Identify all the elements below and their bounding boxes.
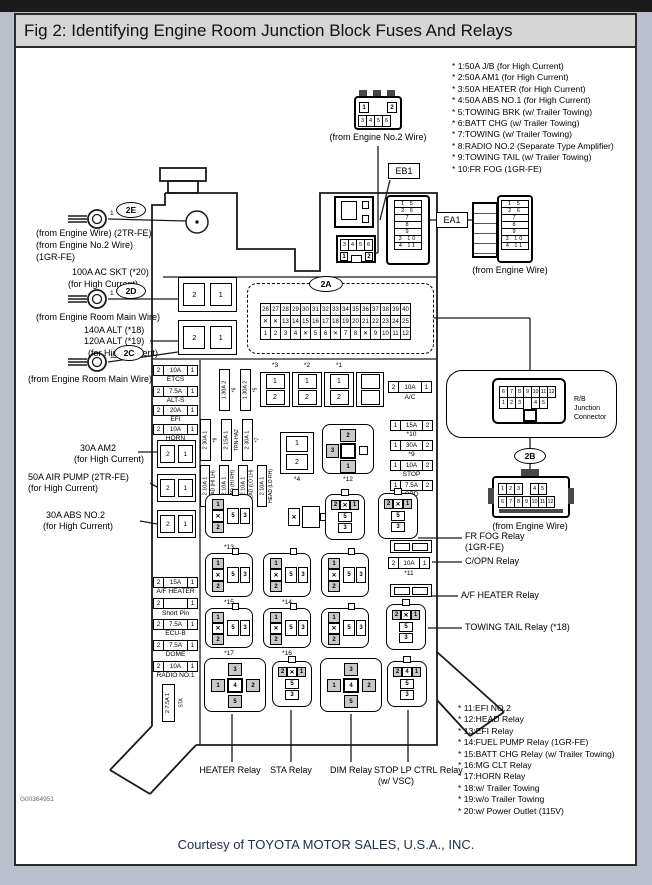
label-engine-wire-2: (from Engine No.2 Wire)	[36, 241, 133, 251]
fuse-name-text: HEAD (LO RH)	[268, 469, 274, 503]
relay-pin: 2	[392, 610, 401, 620]
legend-entry: * 11:EFI NO.2	[458, 703, 615, 714]
block-cell: 1	[266, 374, 285, 389]
relay-pin: 5	[227, 508, 239, 524]
connector-pin: 2	[365, 252, 373, 261]
fuse-p2: 1	[187, 366, 197, 375]
fuse-cell: 2	[160, 479, 175, 497]
relay-pin: 3	[356, 567, 366, 583]
relay-sta: 2 ✕ 1 5 3	[272, 661, 312, 707]
connector-keyway	[523, 409, 537, 422]
relay-pin: 5	[228, 695, 242, 708]
legend-entry: * 12:HEAD Relay	[458, 714, 615, 725]
fuse-name-text: TRN-HAZ	[234, 429, 240, 451]
relay-pin: 1	[403, 499, 412, 509]
relay-star12: 2 3 1	[322, 424, 374, 474]
relay-pin: 2	[270, 581, 282, 592]
callout-af-heater: A/F HEATER Relay	[461, 591, 539, 601]
fuse-cell: 1	[178, 515, 193, 533]
fuse-name: *9	[390, 451, 433, 458]
fuse-amp: 10A	[164, 662, 187, 671]
relay-pin: 1	[297, 667, 306, 677]
relay-pin: 2	[328, 634, 340, 645]
fuse-dome: 27.5A1	[153, 640, 198, 651]
legend-entry: * 13:EFI Relay	[458, 726, 615, 737]
fuse-p1: 1	[391, 421, 401, 430]
fuse-amp: 10A	[164, 366, 187, 375]
connector-pin-row: 12345	[499, 483, 547, 495]
fuse-block-star3: 1 2	[260, 372, 290, 407]
fuse-rating: 2 10A 1	[202, 477, 208, 496]
relay-pin: 3	[240, 620, 250, 636]
fuse-trn-haz: 2 15A 1	[221, 419, 232, 461]
relay-pin: 2	[340, 429, 356, 442]
document-id: G00364951	[20, 796, 54, 803]
fuse-p1: 2	[154, 425, 164, 434]
fuse-name: *8	[211, 419, 220, 461]
relay-pin: 3	[240, 508, 250, 524]
relay-pin: 3	[326, 444, 339, 458]
connector-pin: 12	[547, 386, 556, 398]
blank-fuse-box	[390, 584, 432, 597]
fuse-star7: 2 30A 1	[242, 419, 253, 461]
relay-small: ✕	[288, 506, 326, 530]
callout-sta-relay: STA Relay	[262, 766, 320, 776]
fuse-p1: 2	[154, 620, 164, 629]
relay-star15: 1 ✕ 2 5 3	[205, 553, 253, 597]
label-engine-wire-1: (from Engine Wire) (2TR-FE)	[36, 229, 152, 239]
fuse-amp	[164, 599, 187, 608]
relay-pin: 4	[227, 678, 243, 693]
2b-engine-wire-connector: 12345 6789101112	[492, 476, 570, 518]
block-cell: 2	[266, 390, 285, 405]
fuse-rating: 1 30A 2	[243, 381, 249, 400]
ring-pin-number: 1	[110, 290, 114, 297]
relay-stub	[348, 548, 355, 555]
relay-pin: 2	[212, 634, 224, 645]
relay-pin: 3	[338, 523, 352, 533]
relay-label: *13	[205, 544, 253, 551]
fuse-name: A/F HEATER	[153, 588, 198, 595]
callout-dim-relay: DIM Relay	[320, 766, 382, 776]
connector-pin-row: 4 11	[501, 242, 529, 250]
fuse-star10: 115A2	[390, 420, 433, 431]
block-label: *4	[280, 476, 314, 483]
relay-pin: 1	[350, 500, 359, 510]
fuse-name: *6	[230, 369, 239, 411]
fuse-name: STOP	[390, 471, 433, 478]
relay-pin: 3	[240, 567, 250, 583]
relay-a: 1 ✕ 2 5 3	[321, 608, 369, 648]
relay-pin: 5	[338, 512, 352, 522]
fuse-name: DOME	[153, 651, 198, 658]
label-abs-2: (for High Current)	[43, 522, 113, 532]
fuse-name: ETCS	[153, 376, 198, 383]
block-cell	[361, 390, 380, 405]
relay-pin: 4	[343, 678, 359, 693]
relay-stub	[232, 548, 239, 555]
block-cell	[361, 374, 380, 389]
legend-entry: * 9:TOWING TAIL (w/ Trailer Towing)	[452, 152, 614, 163]
fuse-name: *10	[390, 431, 433, 438]
label-box-eb1: EB1	[388, 163, 420, 179]
fuse-p1: 2	[389, 382, 399, 392]
relay-pin: 1	[328, 612, 340, 623]
fuse-name: TRN-HAZ	[232, 419, 241, 461]
connector-oval-2b: 2B	[514, 448, 546, 464]
relay-pin: 3	[400, 690, 414, 700]
callout-fr-fog-1: FR FOG Relay	[465, 532, 525, 542]
fuse-p2: 1	[419, 558, 429, 568]
connector-keyway	[351, 255, 362, 263]
rb-junction-connector: 6789101112 12345	[492, 378, 566, 424]
relay-pin: 1	[411, 610, 420, 620]
fuse-p1: 2	[154, 366, 164, 375]
fuse-amp: 7.5A	[164, 641, 187, 650]
relay-dim: 3 1 4 2 5	[320, 658, 382, 712]
relay-pin: 1	[212, 558, 224, 569]
relay-pin: 3	[298, 620, 308, 636]
relay-pin: 5	[344, 695, 358, 708]
relay-pin: 3	[391, 522, 405, 532]
connector-ear	[488, 488, 494, 504]
fuse-name: RADIO NO.1	[153, 672, 198, 679]
relay-stub	[348, 603, 355, 610]
connector-pin-rows: 1 52 67893 104 11	[501, 201, 529, 250]
fuse-p1: 2	[154, 578, 164, 587]
relay-star13: 1 ✕ 2 5 3	[205, 494, 253, 538]
fuse-amp: 30A	[401, 441, 422, 450]
relay-stub	[232, 489, 239, 496]
fuse-p2: 1	[187, 599, 197, 608]
relay-pin: ✕	[270, 623, 282, 634]
relay-pin: ✕	[287, 667, 297, 677]
fuse-star5: 1 30A 2	[240, 369, 251, 411]
connector-pin-row: 3456	[359, 115, 391, 127]
relay-pin: 3	[399, 633, 413, 643]
legend-entry: * 18:w/ Trailer Towing	[458, 783, 615, 794]
fuse-amp: 7.5A	[164, 620, 187, 629]
fuse-name-text: *8	[212, 438, 218, 443]
fuse-name: *11	[388, 570, 430, 577]
fuse-alt-s: 27.5A1	[153, 386, 198, 397]
2a-grid-row-3: 1234✕56✕78✕9101112	[261, 327, 411, 340]
connector-tab	[362, 215, 369, 223]
connector-cavity	[341, 201, 357, 220]
relay-stub	[290, 603, 297, 610]
fuse-star9: 130A2	[390, 440, 433, 451]
relay-stop-lp-ctrl: 2 4 1 5 3	[387, 661, 427, 707]
label-engine-wire-3: (1GR-FE)	[36, 253, 75, 263]
connector-pin: 5	[538, 483, 547, 495]
legend-entry: * 7:TOWING (w/ Trailer Towing)	[452, 129, 614, 140]
relay-label: *14	[263, 599, 311, 606]
relay-pin: 3	[298, 567, 308, 583]
relay-stub	[232, 603, 239, 610]
connector-pin-row: 4 11	[394, 242, 422, 250]
relay-pin: 2	[384, 499, 393, 509]
fuse-name: ECU-B	[153, 630, 198, 637]
relay-pin: 2	[270, 634, 282, 645]
relay-pin: 4	[402, 667, 412, 677]
fuse-cell: 1	[210, 326, 232, 349]
fuse-stop: 110A2	[390, 460, 433, 471]
block-cell: 2	[330, 390, 349, 405]
legend-entry: * 14:FUEL PUMP Relay (1GR-FE)	[458, 737, 615, 748]
legend-entry: * 5:TOWING BRK (w/ Trailer Towing)	[452, 107, 614, 118]
connector-pin-row: 3456	[341, 239, 373, 251]
relay-pin: 1	[412, 667, 421, 677]
fuse-p2: 1	[187, 425, 197, 434]
relay-pin: 3	[356, 620, 366, 636]
relay-pin: 1	[212, 499, 224, 510]
relay-pin: 5	[343, 567, 355, 583]
fuse-name: HORN	[153, 435, 198, 442]
relay-pin: 5	[227, 620, 239, 636]
connector-pin: 1	[359, 102, 369, 113]
rb-label-line2: Junction	[574, 405, 600, 413]
callout-stop-relay-2: (w/ VSC)	[378, 777, 414, 787]
legend-entry: * 1:50A J/B (for High Current)	[452, 61, 614, 72]
relay-pin: 3	[344, 663, 358, 676]
relay-stub	[403, 656, 411, 663]
relay-pin: 5	[285, 679, 299, 689]
fuse-p1: 2	[154, 662, 164, 671]
legend-entry: * 20:w/ Power Outlet (115V)	[458, 806, 615, 817]
fuse-p2: 1	[187, 387, 197, 396]
block-cell: 2	[298, 390, 317, 405]
connector-tab	[362, 201, 369, 209]
fuse-cell: 2	[183, 326, 205, 349]
ea1-engine-wire-connector-pins: 1 52 67893 104 11	[497, 195, 533, 263]
legend-entry: * 16:MG CLT Relay	[458, 760, 615, 771]
fuse-p1: 2	[154, 406, 164, 415]
relay-pin: 2	[212, 581, 224, 592]
high-current-fuse-box-am2: 2 1	[157, 440, 196, 468]
block-cell: 2	[286, 454, 308, 470]
legend-entry: * 8:RADIO NO.2 (Separate Type Amplifier)	[452, 141, 614, 152]
block-cell: 1	[286, 436, 308, 452]
fuse-radio-no1: 210A1	[153, 661, 198, 672]
fuse-legend-top: * 1:50A J/B (for High Current)* 2:50A AM…	[452, 61, 614, 175]
fuse-block-star1: 1 2	[324, 372, 354, 407]
fuse-p1: 2	[154, 641, 164, 650]
fuse-cell: 1	[210, 283, 232, 306]
legend-entry: * 4:50A ABS NO.1 (for High Current)	[452, 95, 614, 106]
ea1-engine-wire-connector-body	[472, 202, 498, 258]
relay-pin: ✕	[212, 510, 224, 522]
label-abs-1: 30A ABS NO.2	[46, 511, 105, 521]
relay-pin: 1	[211, 679, 225, 692]
fuse-name-text: *6	[231, 388, 237, 393]
fuse-cell: 2	[183, 283, 205, 306]
relay-pin: 2	[246, 679, 260, 692]
fuse-p1: 1	[391, 461, 401, 470]
ea1-block-connector: 1 52 67893 104 11	[386, 195, 430, 265]
relay-pin: ✕	[328, 623, 340, 634]
fuse-cell: 2	[160, 515, 175, 533]
fuse-efi: 220A1	[153, 405, 198, 416]
fuse-p2: 1	[187, 620, 197, 629]
fuse-amp: 7.5A	[164, 387, 187, 396]
fuse-amp: 15A	[401, 421, 422, 430]
fuse-block-star2: 1 2	[292, 372, 322, 407]
connector-pin: 1	[340, 252, 348, 261]
fuse-head-lo-rh: 2 10A 1	[257, 465, 267, 507]
relay-pin: 5	[285, 567, 297, 583]
relay-pin: 2	[331, 500, 340, 510]
relay-a: 1 ✕ 2 5 3	[321, 553, 369, 597]
legend-entry: * 17:HORN Relay	[458, 771, 615, 782]
fuse-block-star4: 1 2	[280, 432, 314, 474]
caption-ea1-engine-wire: (from Engine Wire)	[445, 266, 575, 276]
fuse-ecu-b: 27.5A1	[153, 619, 198, 630]
relay-stub	[341, 489, 349, 496]
callout-c-opn: C/OPN Relay	[465, 557, 519, 567]
label-box-ea1: EA1	[436, 212, 468, 228]
fuse-rating: 2 30A 1	[245, 431, 251, 450]
fuse-p2: 1	[421, 382, 431, 392]
relay-stub	[394, 488, 402, 495]
relay-pin: 1	[328, 558, 340, 569]
fuse-p2: 2	[422, 421, 432, 430]
relay-label: *17	[205, 650, 253, 657]
fuse-rating: 2 10A 1	[259, 477, 265, 496]
relay-pin: 5	[227, 567, 239, 583]
relay-heater: 3 1 4 2 5	[204, 658, 266, 712]
eb1-connector-a	[334, 196, 374, 228]
fuse-cell	[412, 587, 428, 595]
engine-no2-wire-connector: 1 2 3456	[354, 96, 402, 130]
fuse-amp: 20A	[164, 406, 187, 415]
connector-oval-2a: 2A	[309, 276, 343, 292]
fuse-amp: 10A	[401, 461, 422, 470]
fuse-p2: 1	[187, 578, 197, 587]
high-current-fuse-box-abs: 2 1	[157, 510, 196, 538]
fuse-star11: 210A1	[388, 557, 430, 569]
connector-oval-2d: 2D	[116, 283, 146, 299]
connector-pin-rows: 1 52 67893 104 11	[394, 201, 422, 250]
fuse-name: A/C	[388, 394, 432, 401]
fuse-sta: 2 7.5A 1	[162, 684, 175, 722]
relay-stub	[402, 599, 410, 606]
fuse-star8: 2 30A 1	[200, 419, 211, 461]
high-current-fuse-box-air-pump: 2 1	[157, 474, 196, 502]
fuse-name: *7	[253, 419, 262, 461]
rb-label-line3: Connector	[574, 414, 606, 422]
fuse-name: EFI	[153, 416, 198, 423]
label-am2-1: 30A AM2	[80, 444, 116, 454]
relay-pin: 1	[212, 612, 224, 623]
relay-pin: 1	[270, 558, 282, 569]
callout-stop-relay-1: STOP LP CTRL Relay	[374, 766, 463, 776]
2a-pin: 12	[400, 327, 411, 340]
connector-oval-2c: 2C	[114, 345, 144, 361]
fuse-p2: 2	[422, 461, 432, 470]
block-label: *1	[324, 362, 354, 369]
fuse-amp: 10A	[399, 558, 419, 568]
fuse-amp: 10A	[399, 382, 421, 392]
connector-pin-row: 12345	[500, 397, 548, 409]
fuse-star6: 1 30A 2	[219, 369, 230, 411]
connector-ear	[568, 488, 574, 504]
fuse-name: Short Pin	[153, 610, 198, 617]
fuse-rating: 2 15A 1	[224, 431, 230, 450]
connector-pin: 3	[514, 483, 523, 495]
courtesy-credit: Courtesy of TOYOTA MOTOR SALES, U.S.A., …	[26, 838, 626, 852]
relay-pin: 5	[391, 511, 405, 521]
relay-body	[302, 506, 320, 528]
relay-pin: ✕	[393, 499, 403, 509]
connector-pin: 2	[387, 102, 397, 113]
relay-star16: 1 ✕ 2 5 3	[263, 608, 311, 648]
legend-entry: * 3:50A HEATER (for High Current)	[452, 84, 614, 95]
fuse-short-pin: 21	[153, 598, 198, 609]
relay-label: *16	[263, 650, 311, 657]
relay-pin: 2	[212, 522, 224, 533]
legend-entry: * 6:BATT CHG (w/ Trailer Towing)	[452, 118, 614, 129]
legend-entry: * 2:50A AM1 (for High Current)	[452, 72, 614, 83]
label-air-pump-1: 50A AIR PUMP (2TR-FE)	[28, 473, 129, 483]
legend-entry: * 15:BATT CHG Relay (w/ Trailer Towing)	[458, 749, 615, 760]
relay-pin: ✕	[212, 623, 224, 634]
fuse-p1: 2	[154, 599, 164, 608]
relay-towing-tail: 2 ✕ 1 5 3	[386, 604, 426, 650]
caption-engine-no2-wire: (from Engine No.2 Wire)	[300, 133, 456, 143]
fuse-p2: 1	[187, 641, 197, 650]
relay-pin: ✕	[328, 569, 340, 581]
relay-pin: 5	[400, 679, 414, 689]
block-label: *3	[260, 362, 290, 369]
fuse-block-blank	[356, 372, 384, 407]
connector-base	[499, 509, 563, 513]
connector-pin: 6	[364, 239, 373, 251]
relay-stub	[290, 548, 297, 555]
relay-tab	[359, 446, 368, 455]
fuse-rating: 1 30A 2	[222, 381, 228, 400]
relay-pin: ✕	[288, 508, 300, 526]
relay-legend-bottom: * 11:EFI NO.2* 12:HEAD Relay* 13:EFI Rel…	[458, 703, 615, 817]
relay-label: *15	[205, 599, 253, 606]
block-cell: 1	[298, 374, 317, 389]
eb1-connector-b: 3456 1 2	[336, 235, 376, 263]
fuse-etcs: 210A1	[153, 365, 198, 376]
connector-pin: 5	[539, 397, 548, 409]
relay-pin: 2	[328, 581, 340, 592]
relay-pin: 1	[270, 612, 282, 623]
connector-pin: 3	[515, 397, 524, 409]
fuse-p1: 1	[391, 441, 401, 450]
fuse-amp: 10A	[164, 425, 187, 434]
relay-star14: 1 ✕ 2 5 3	[263, 553, 311, 597]
high-current-fuse-box: 2 1	[178, 320, 237, 355]
connector-pin: 6	[382, 115, 391, 127]
relay-b: 2 ✕ 1 5 3	[325, 494, 365, 540]
block-cell: 1	[330, 374, 349, 389]
relay-star17: 1 ✕ 2 5 3	[205, 608, 253, 648]
fuse-name: ALT-S	[153, 397, 198, 404]
relay-pin: 5	[343, 620, 355, 636]
fuse-cell	[394, 543, 410, 551]
relay-pin: ✕	[212, 569, 224, 581]
fuse-name: *5	[251, 369, 259, 411]
relay-pin: 3	[285, 690, 299, 700]
relay-pin: 5	[285, 620, 297, 636]
label-am2-2: (for High Current)	[74, 455, 144, 465]
fuse-p1: 2	[154, 387, 164, 396]
fuse-af-heater: 215A1	[153, 577, 198, 588]
connector-oval-2e: 2E	[116, 202, 146, 218]
